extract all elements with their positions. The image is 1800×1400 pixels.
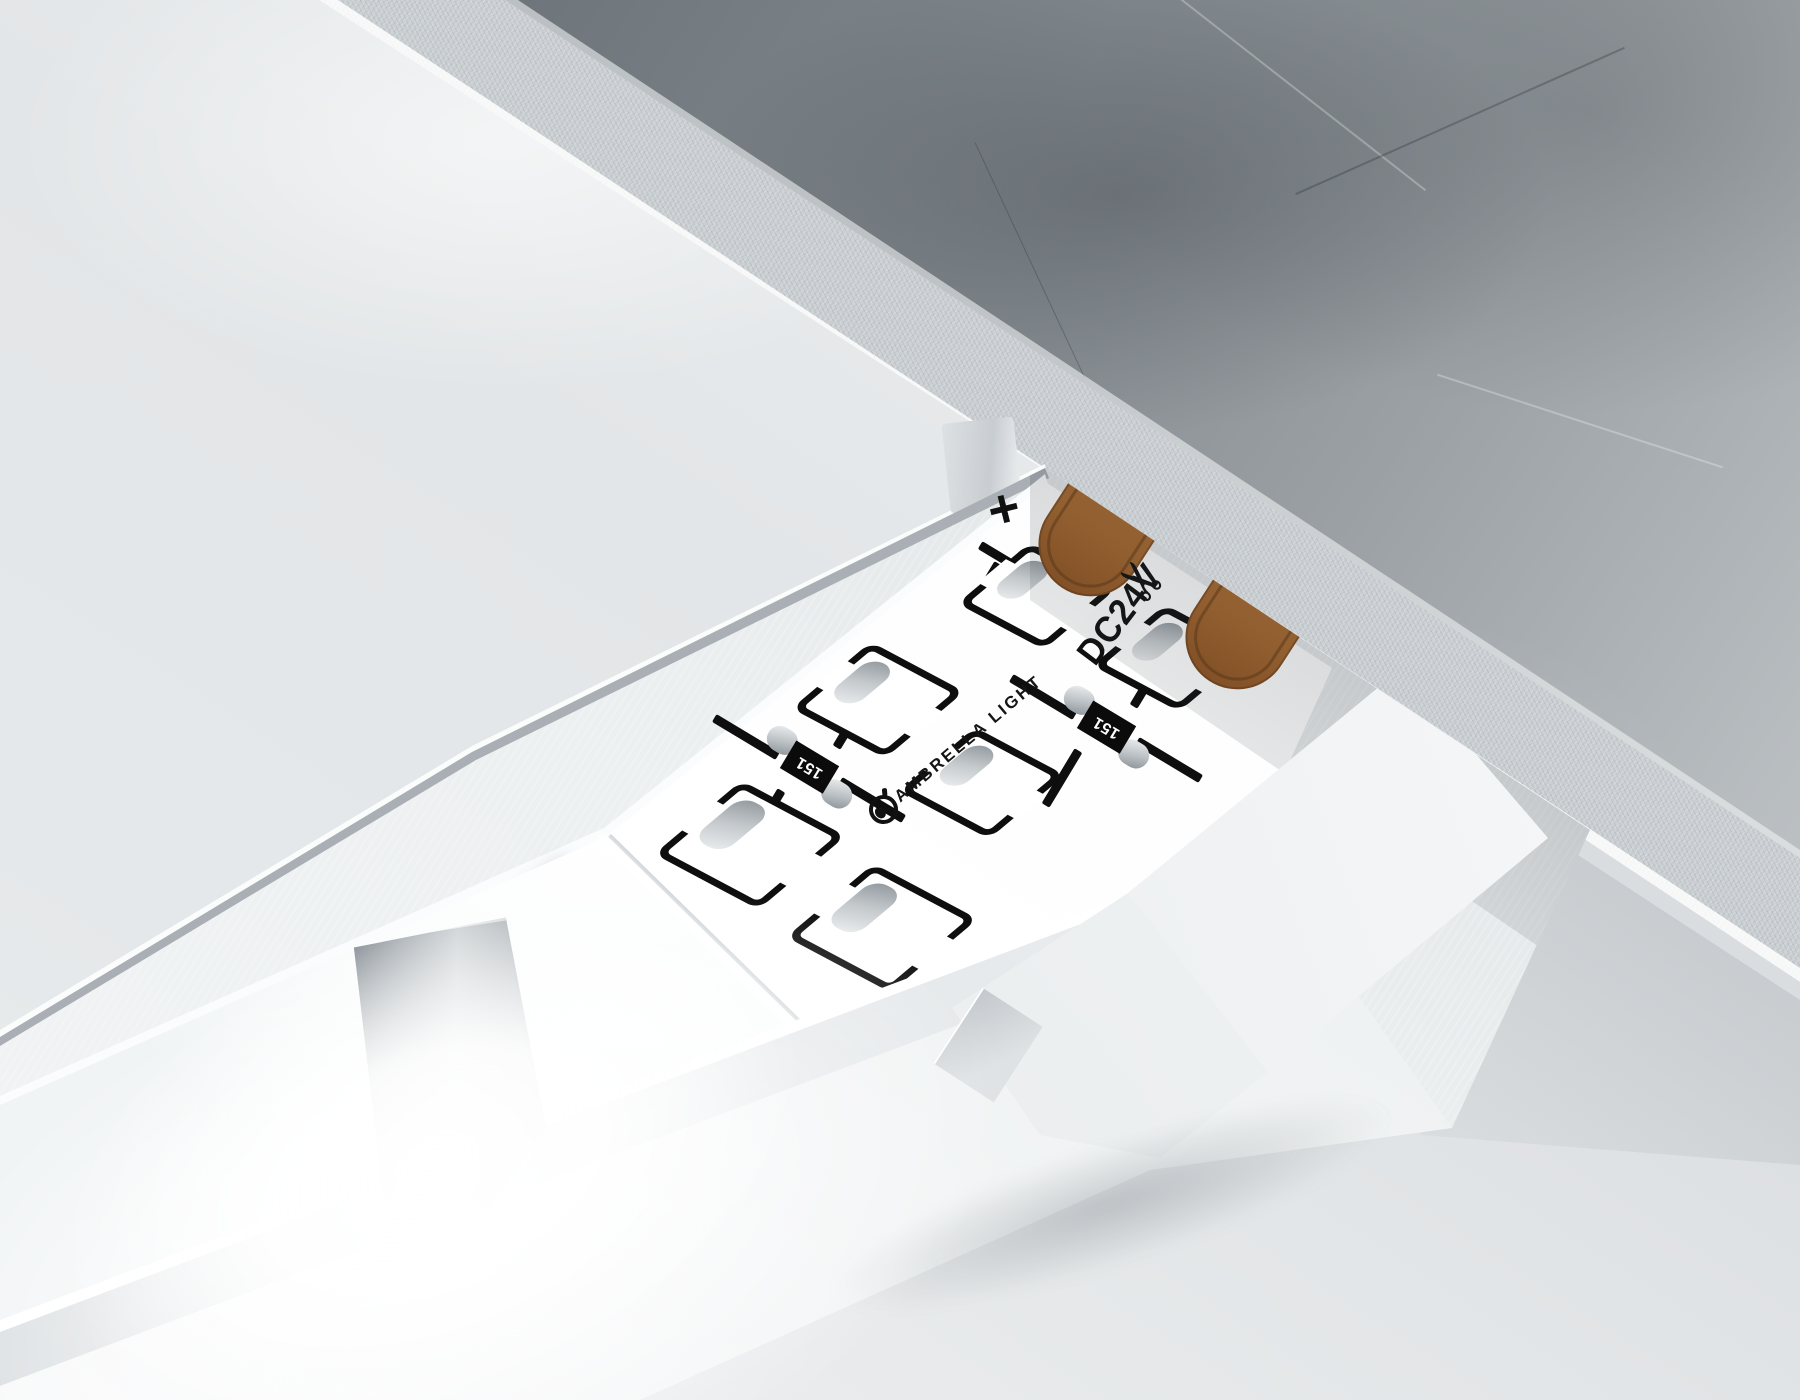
resistor-value: 151 (1090, 712, 1123, 742)
led-profile-scene: 151 151 AMBRELLA LIGHT DC24V + ✂ (0, 0, 1800, 1400)
concrete-scratch (1437, 374, 1723, 469)
concrete-scratch (1094, 0, 1426, 191)
concrete-scratch (1295, 47, 1625, 195)
